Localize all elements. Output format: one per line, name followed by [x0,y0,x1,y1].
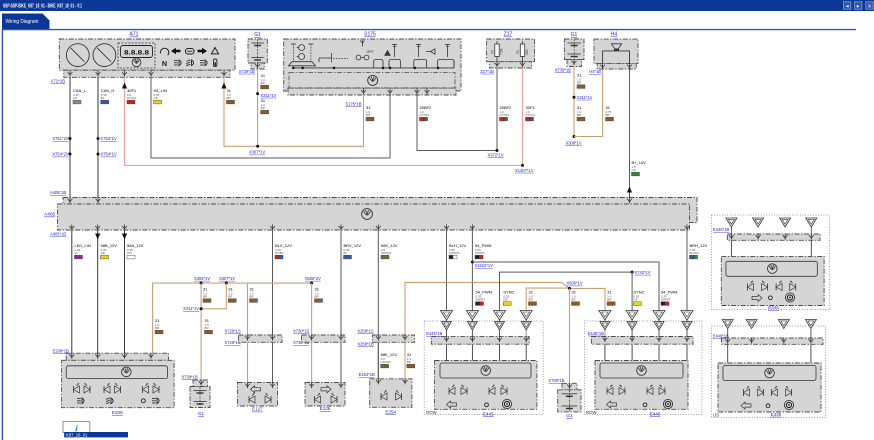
svg-text:G1: G1 [571,32,578,38]
svg-text:X739*1B: X739*1B [555,68,571,73]
svg-text:GE: GE [101,251,105,255]
svg-text:GR/SW: GR/SW [381,251,391,255]
svg-text:X739*1B: X739*1B [182,374,198,379]
svg-text:A71: A71 [130,32,139,38]
svg-text:BR: BR [572,298,577,302]
svg-text:BR: BR [577,81,582,85]
svg-text:◄: ◄ [845,3,850,8]
svg-text:BR: BR [407,360,412,364]
svg-text:BR: BR [228,295,233,299]
svg-text:8.8.8.8: 8.8.8.8 [124,50,149,57]
svg-text:X1522*1V: X1522*1V [475,263,494,268]
svg-text:K87_18_01: K87_18_01 [66,432,88,437]
svg-text:E440: E440 [771,412,782,417]
svg-text:S175: S175 [364,32,376,38]
svg-text:SSP-SSP-BIKE_K87_18_01 - BIKE_: SSP-SSP-BIKE_K87_18_01 - BIKE_K87_18_01 … [3,3,82,9]
svg-text:E446*1B: E446*1B [713,227,729,232]
svg-text:E127: E127 [252,407,263,412]
svg-text:BR: BR [366,113,371,117]
svg-text:RT/GN: RT/GN [127,96,136,100]
svg-text:X307*1V: X307*1V [249,150,265,155]
svg-text:X308*1V: X308*1V [566,140,582,145]
svg-text:RT/GN: RT/GN [526,113,535,117]
svg-text:A405: A405 [44,212,56,218]
svg-text:X307*1V: X307*1V [219,276,235,281]
svg-text:X311*1V: X311*1V [183,306,199,311]
svg-text:X751*2V: X751*2V [52,136,68,141]
svg-text:RT/BL: RT/BL [275,251,284,255]
svg-text:A405*1D: A405*1D [50,231,66,236]
svg-text:ROW: ROW [426,410,437,415]
svg-text:BR: BR [261,81,266,85]
svg-text:G1: G1 [566,413,573,418]
svg-text:Z17: Z17 [504,32,513,38]
svg-text:X742*1V: X742*1V [635,270,651,275]
svg-text:X258*1S: X258*1S [357,329,373,334]
svg-text:BR: BR [203,295,208,299]
svg-text:F2: F2 [491,50,495,54]
svg-text:GR/SW: GR/SW [381,360,391,364]
svg-text:X306*1V: X306*1V [194,276,210,281]
svg-text:7.5A: 7.5A [500,48,504,55]
svg-text:BR: BR [205,326,210,330]
svg-text:X739*1B: X739*1B [548,378,564,383]
svg-text:E208: E208 [112,410,123,415]
svg-text:X730*1S: X730*1S [293,329,309,334]
svg-text:►: ► [856,3,861,8]
svg-text:X754*1V: X754*1V [101,152,117,157]
svg-text:E445: E445 [483,411,494,416]
svg-text:BR: BR [227,96,232,100]
svg-text:BL: BL [344,251,348,255]
svg-text:E126: E126 [320,406,331,411]
svg-text:GE: GE [503,298,507,302]
svg-text:RT/WS: RT/WS [420,113,430,117]
svg-text:US: US [713,413,719,418]
svg-text:A405*1B: A405*1B [50,190,66,195]
svg-text:X258*1B: X258*1B [357,342,373,347]
svg-text:SW/RT: SW/RT [476,298,486,302]
svg-text:GE: GE [633,298,637,302]
svg-text:BR: BR [577,113,582,117]
svg-text:X753*1V: X753*1V [101,136,117,141]
svg-text:X1407*1V: X1407*1V [515,168,534,173]
svg-text:BR: BR [261,106,266,110]
svg-text:S175*1B: S175*1B [345,101,361,106]
svg-text:E445*1B: E445*1B [426,331,442,336]
svg-text:E446: E446 [768,305,779,310]
svg-text:SW/WS: SW/WS [449,251,460,255]
svg-text:BL: BL [101,96,105,100]
svg-text:F1: F1 [516,50,520,54]
svg-text:X372*1V: X372*1V [488,153,504,158]
svg-text:BL/GN: BL/GN [690,251,699,255]
svg-text:Z17*1B: Z17*1B [480,69,494,74]
svg-text:E440*1B: E440*1B [713,333,729,338]
svg-text:GE: GE [154,96,158,100]
svg-text:X311*1V: X311*1V [577,95,593,100]
svg-text:15A: 15A [525,48,529,55]
svg-text:G1: G1 [254,32,261,38]
svg-text:E446: E446 [650,411,661,416]
svg-text:E254: E254 [385,409,396,414]
svg-text:A71*1B: A71*1B [51,78,66,83]
svg-text:GN: GN [632,168,637,172]
svg-text:RT/WS: RT/WS [500,113,510,117]
svg-text:ROW: ROW [586,410,597,415]
svg-text:H4*1B: H4*1B [589,69,601,74]
svg-text:BR: BR [315,295,320,299]
svg-text:BR: BR [250,295,255,299]
svg-text:WS: WS [127,251,132,255]
svg-text:BR: BR [607,298,612,302]
svg-text:Wiring Diagram: Wiring Diagram [6,19,40,25]
svg-text:X739*1B: X739*1B [239,69,255,74]
svg-text:X729*1S: X729*1S [225,329,241,334]
svg-text:G1: G1 [198,411,205,416]
svg-text:X754*2V: X754*2V [52,152,68,157]
svg-text:H4: H4 [611,32,618,38]
svg-text:X506*2V: X506*2V [305,276,321,281]
svg-text:OFF: OFF [367,50,375,54]
svg-text:SW/RT: SW/RT [475,251,485,255]
svg-text:E254*1B: E254*1B [359,372,375,377]
svg-text:BR: BR [155,326,160,330]
svg-text:BR: BR [529,298,534,302]
svg-text:VI: VI [75,251,78,255]
svg-text:SW/RT: SW/RT [661,298,671,302]
svg-text:N: N [162,59,167,68]
svg-text:X506*1V: X506*1V [567,281,583,286]
svg-text:E446*1B: E446*1B [588,331,604,336]
